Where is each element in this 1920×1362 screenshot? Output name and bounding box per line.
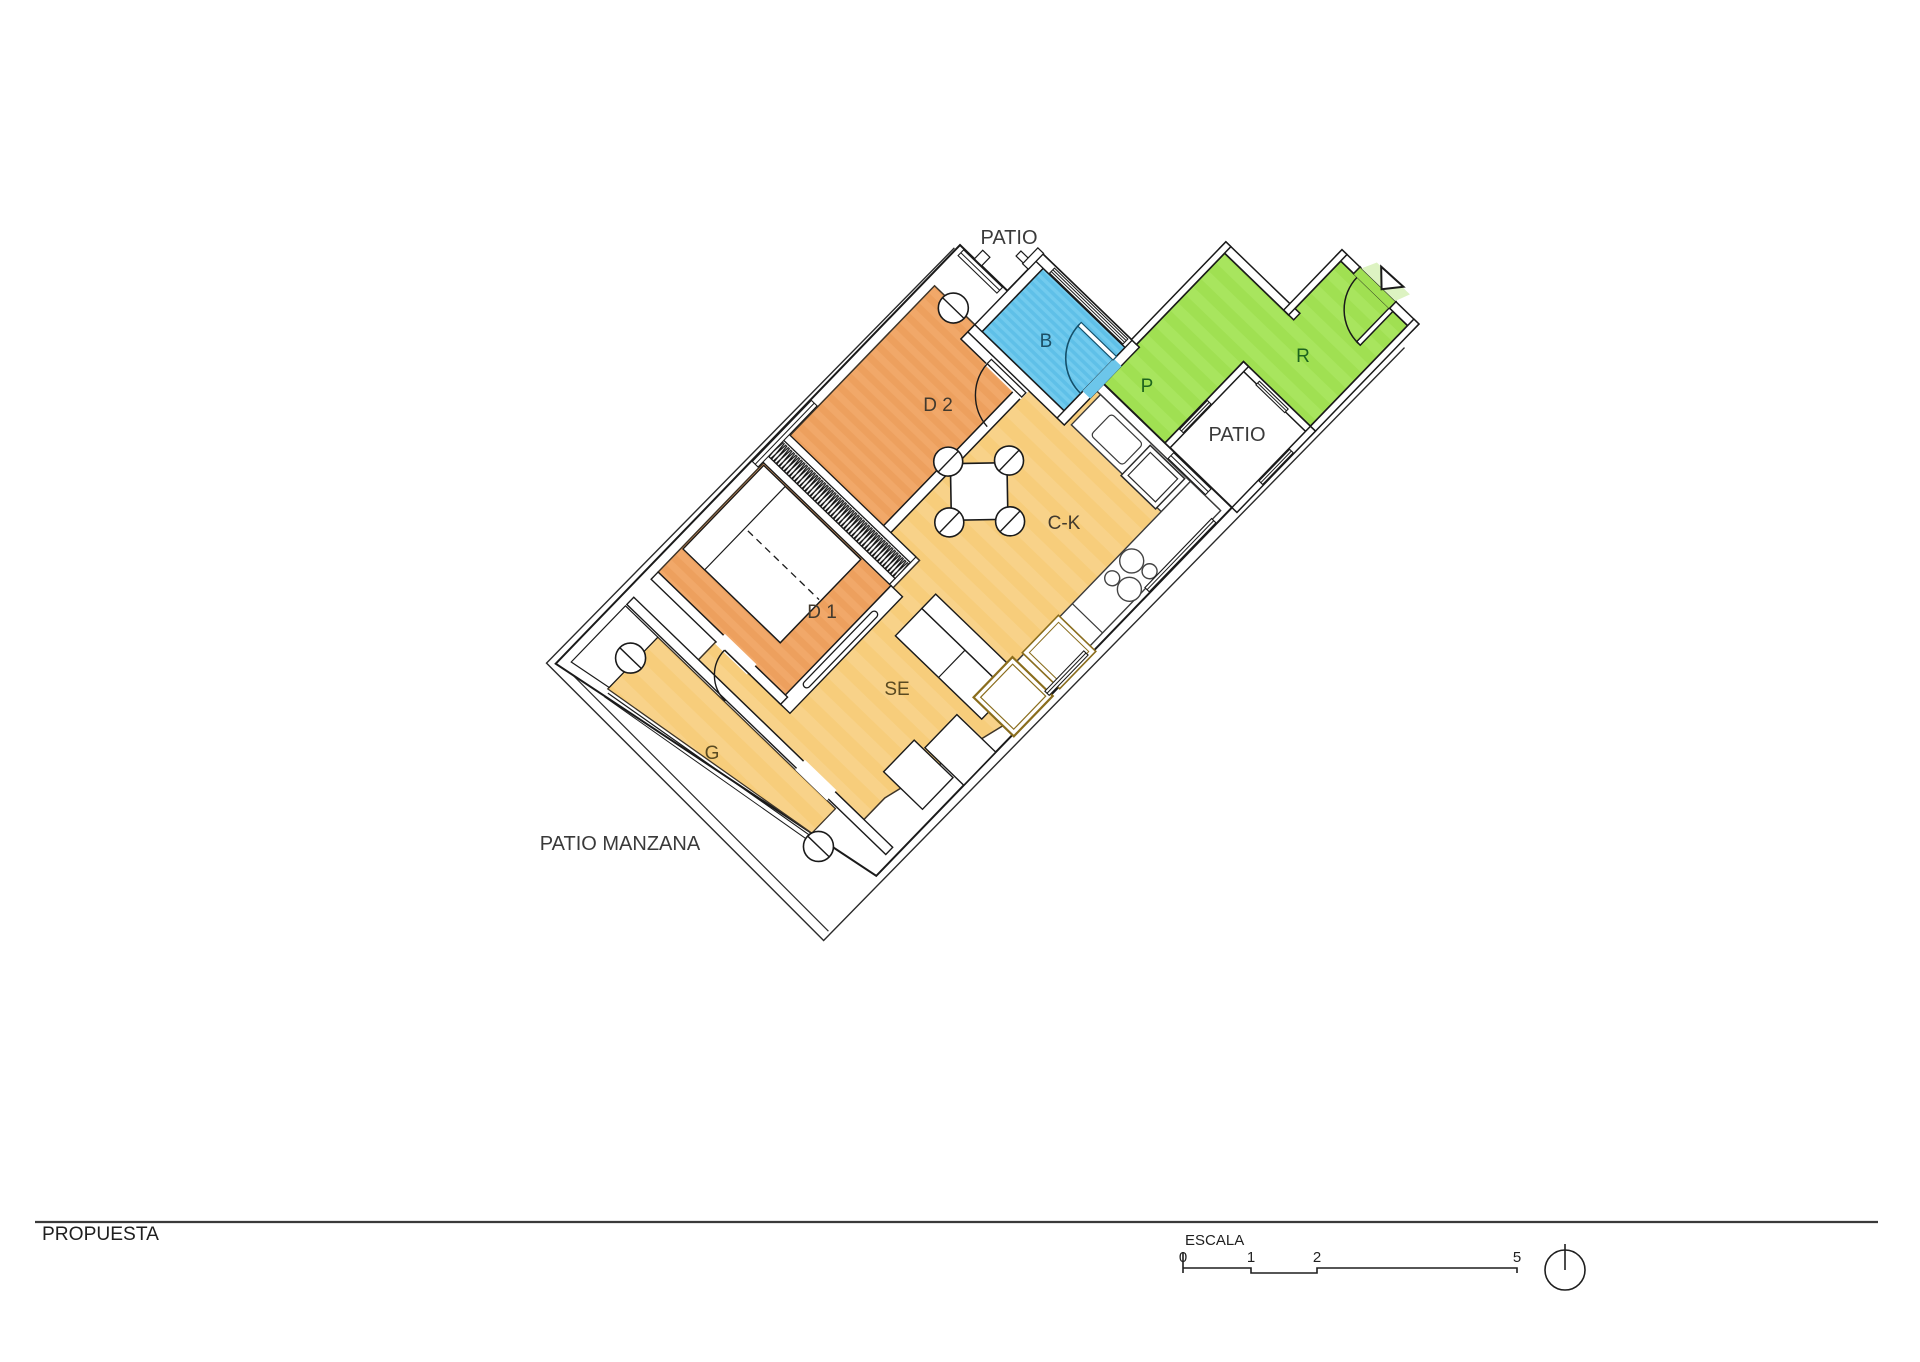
svg-text:5: 5 <box>1513 1249 1521 1266</box>
svg-text:C-K: C-K <box>1048 513 1081 534</box>
svg-text:PROPUESTA: PROPUESTA <box>42 1224 159 1245</box>
svg-text:B: B <box>1040 331 1053 352</box>
svg-text:PATIO: PATIO <box>1208 424 1265 446</box>
svg-text:G: G <box>705 743 720 764</box>
svg-text:1: 1 <box>1247 1249 1255 1266</box>
svg-text:PATIO: PATIO <box>980 227 1037 249</box>
svg-text:ESCALA: ESCALA <box>1185 1232 1244 1249</box>
svg-text:2: 2 <box>1313 1249 1321 1266</box>
svg-text:D 1: D 1 <box>807 602 837 623</box>
svg-text:D 2: D 2 <box>923 395 953 416</box>
svg-text:P: P <box>1141 376 1154 397</box>
svg-text:SE: SE <box>884 679 909 700</box>
svg-text:R: R <box>1296 346 1310 367</box>
svg-text:PATIO MANZANA: PATIO MANZANA <box>540 833 701 855</box>
